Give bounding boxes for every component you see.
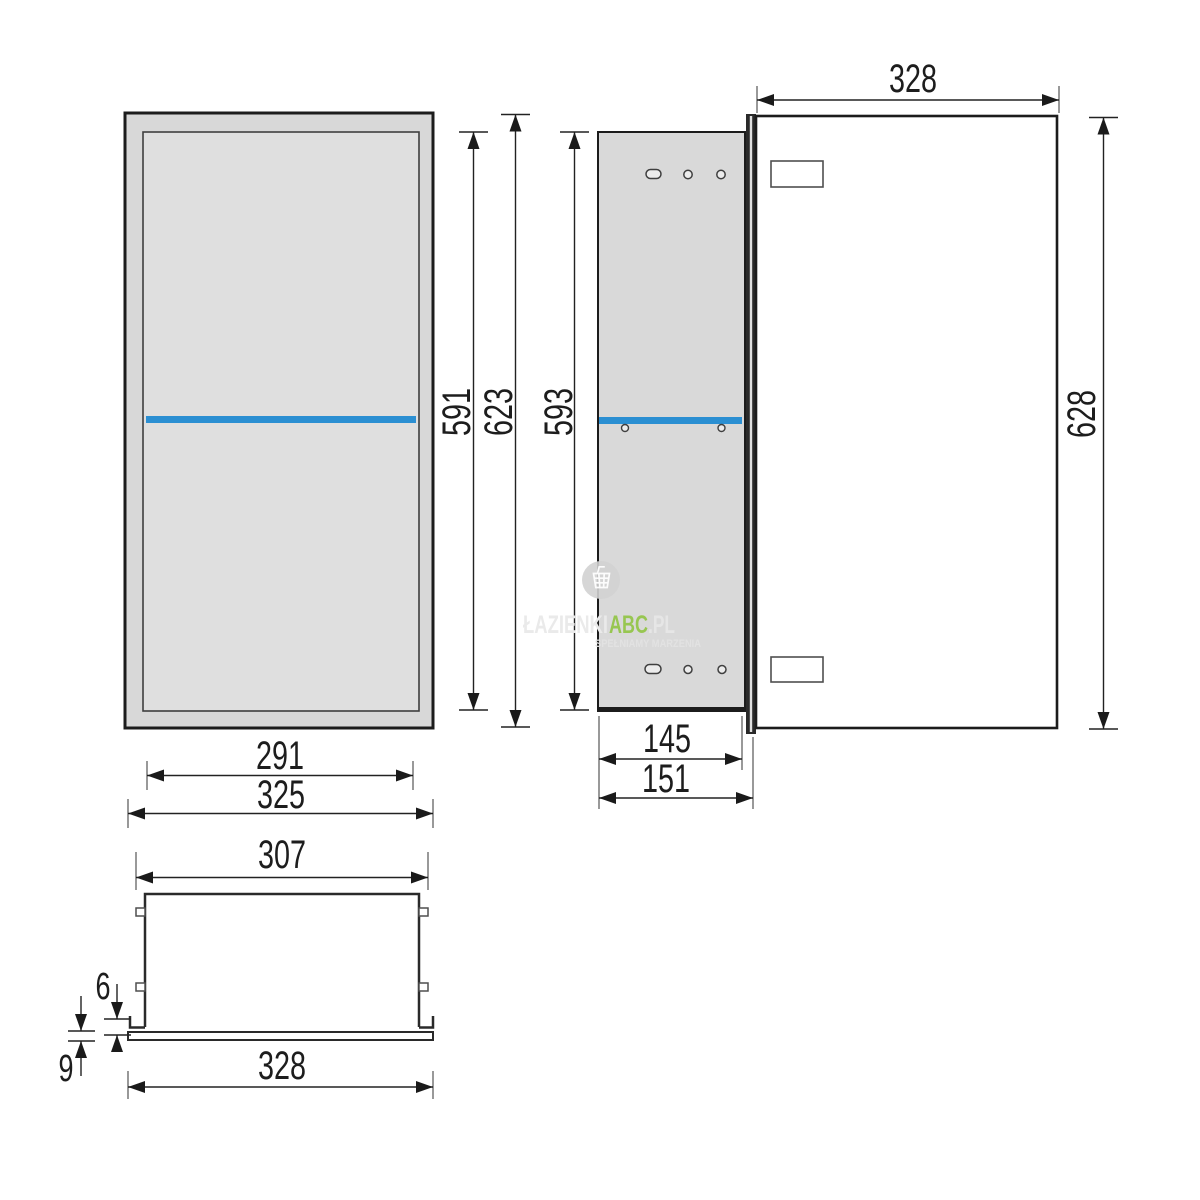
dim-label-325: 325 xyxy=(257,773,305,817)
bottom-tab-left-2 xyxy=(136,983,145,991)
mount-slot-top xyxy=(646,170,661,179)
dim-door-width: 328 xyxy=(757,57,1059,113)
bottom-tab-right-2 xyxy=(419,983,428,991)
dim-label-145: 145 xyxy=(643,717,691,761)
watermark-brand-main: ABC xyxy=(609,611,648,639)
mount-hole-bottom-2 xyxy=(718,666,726,674)
mount-hole-bottom-1 xyxy=(684,666,692,674)
dim-bottom-overall-width: 328 xyxy=(128,1044,433,1099)
dim-label-623: 623 xyxy=(477,388,521,436)
bottom-base-plate xyxy=(128,1032,433,1040)
door-view xyxy=(746,114,1057,734)
bottom-tab-right-1 xyxy=(419,908,428,916)
dim-bottom-body-width: 307 xyxy=(136,833,428,890)
bottom-body-outline xyxy=(145,894,419,1027)
shelf-hole-1 xyxy=(622,425,629,432)
dim-label-151: 151 xyxy=(642,757,690,801)
mount-hole-top-2 xyxy=(717,170,725,178)
door-face-panel xyxy=(756,116,1057,728)
bottom-view xyxy=(128,894,433,1040)
watermark-tagline: SPEŁNIAMY MARZENIA xyxy=(595,638,701,650)
shelf-hole-2 xyxy=(718,425,725,432)
dim-label-591: 591 xyxy=(435,388,479,436)
dim-bottom-lip-height: 6 xyxy=(96,966,132,1052)
bottom-left-flange xyxy=(130,1016,145,1028)
bottom-right-flange xyxy=(419,1016,433,1028)
dim-label-328-top: 328 xyxy=(889,57,937,101)
dim-label-9: 9 xyxy=(59,1048,74,1090)
dim-front-outer-width: 325 xyxy=(128,773,433,828)
dim-label-291: 291 xyxy=(256,734,304,778)
front-view xyxy=(125,113,433,728)
watermark-brand-suffix: .PL xyxy=(648,611,675,639)
dim-label-6: 6 xyxy=(96,966,111,1008)
door-hinge-cutout-top xyxy=(771,161,823,187)
dim-label-593: 593 xyxy=(537,388,581,436)
dim-label-307: 307 xyxy=(258,833,306,877)
dim-label-628: 628 xyxy=(1060,390,1104,438)
technical-drawing-page: 591 623 291 325 593 xyxy=(0,0,1200,1200)
bottom-tab-left-1 xyxy=(136,908,145,916)
watermark-brand-prefix: ŁAZIENKI xyxy=(523,611,608,639)
dim-door-height: 628 xyxy=(1060,118,1118,730)
dim-label-328-bottom: 328 xyxy=(258,1044,306,1088)
mount-hole-top-1 xyxy=(684,170,692,178)
door-hinge-cutout-bottom xyxy=(771,657,823,682)
dim-bottom-base-offset: 9 xyxy=(59,996,96,1090)
cabinet-drawing-svg: 591 623 291 325 593 xyxy=(0,0,1200,1200)
mount-slot-bottom xyxy=(645,665,661,674)
